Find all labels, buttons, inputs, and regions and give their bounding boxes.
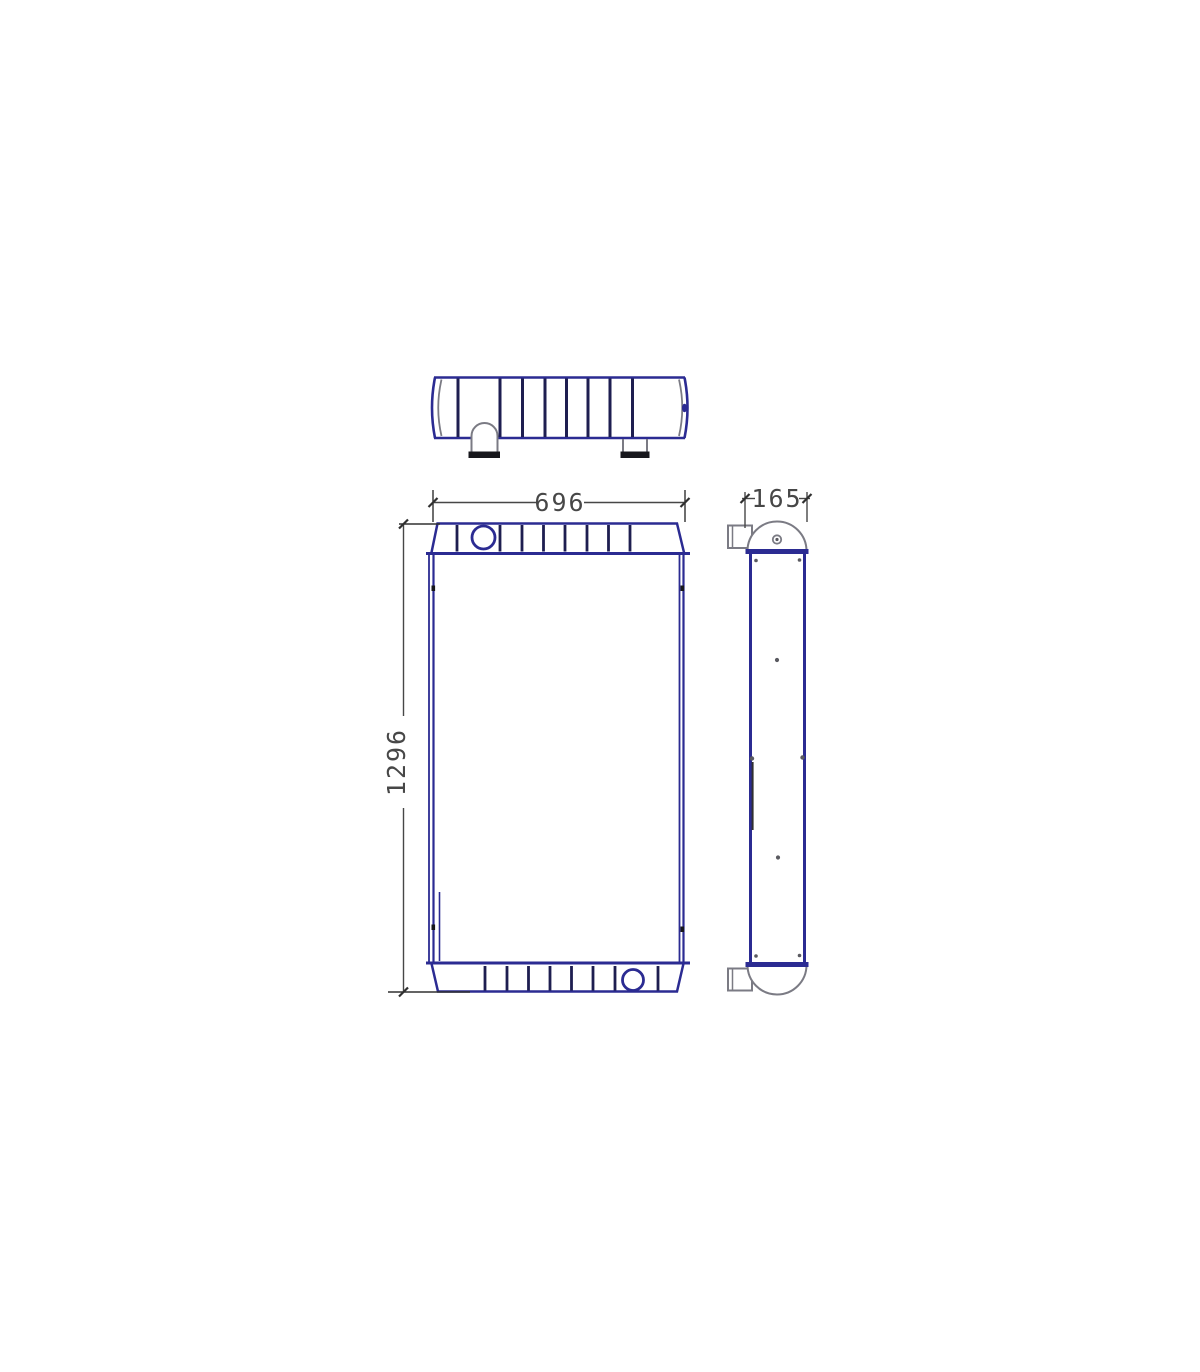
bottom-tank-dome bbox=[748, 965, 807, 995]
top-view-left-cap bbox=[432, 378, 435, 439]
side-view-dots bbox=[750, 558, 805, 958]
drawing-canvas: 696 1296 165 bbox=[0, 0, 1200, 1372]
fitting-base bbox=[621, 452, 650, 459]
front-view bbox=[426, 524, 690, 992]
top-view-left-cap-inner-arc bbox=[438, 380, 441, 437]
top-view-right-cap-inner-arc bbox=[679, 380, 682, 437]
frame-weld-mark bbox=[681, 927, 685, 933]
core-right-frame bbox=[680, 554, 685, 964]
filler-neck-base bbox=[469, 452, 501, 459]
top-view bbox=[432, 378, 688, 459]
width-dimension: 696 bbox=[429, 488, 690, 522]
frame-weld-mark bbox=[681, 586, 685, 592]
core-left-frame bbox=[429, 554, 440, 964]
radiator-technical-drawing: 696 1296 165 bbox=[0, 0, 1200, 1372]
filler-neck bbox=[472, 423, 498, 452]
dome-cap-dot bbox=[775, 538, 778, 541]
bottom-tank bbox=[432, 964, 684, 992]
filler-cap-circle bbox=[472, 526, 495, 549]
top-view-fitting bbox=[621, 439, 650, 458]
frame-weld-mark bbox=[432, 586, 436, 592]
drain-port-circle bbox=[623, 970, 644, 991]
top-tank bbox=[432, 524, 685, 553]
height-dimension-label: 1296 bbox=[382, 728, 411, 796]
width-dimension-label: 696 bbox=[534, 488, 585, 517]
frame-weld-mark bbox=[432, 925, 436, 931]
side-view bbox=[728, 522, 809, 995]
top-view-side-nub bbox=[682, 404, 687, 412]
depth-dimension-label: 165 bbox=[751, 484, 802, 513]
height-dimension: 1296 bbox=[382, 520, 470, 997]
